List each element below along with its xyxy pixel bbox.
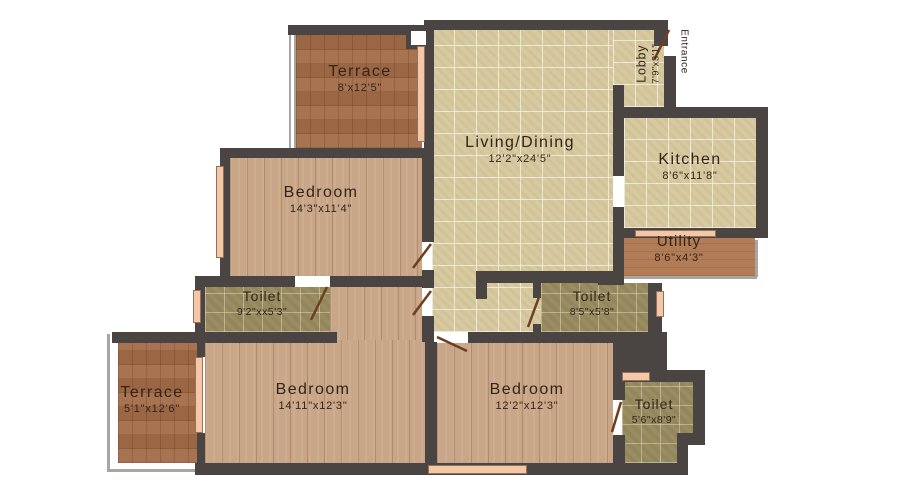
door-swing-overlay — [0, 0, 900, 500]
toilet-middle-label: Toilet 8'5"x5'8" — [522, 288, 662, 319]
terrace-top-label: Terrace 8'x12'5" — [290, 62, 430, 96]
bedroom-bottom-right-door-leaf — [437, 337, 467, 351]
bedroom-top-door-leaf — [413, 244, 431, 268]
bedroom-bottom-left-label: Bedroom 14'11"x12'3" — [233, 380, 393, 414]
hallway-door-leaf — [413, 291, 431, 315]
floor-plan: Terrace 8'x12'5" Living/Dining 12'2"x24'… — [0, 0, 900, 500]
living-dining-label: Living/Dining 12'2"x24'5" — [440, 133, 600, 167]
entrance-label: Entrance — [679, 20, 690, 84]
toilet-bottom-right-label: Toilet 5'6"x8'9" — [584, 396, 724, 427]
bedroom-bottom-right-label: Bedroom 12'2"x12'3" — [447, 380, 607, 414]
utility-label: Utility 8'6"x4'3" — [609, 233, 749, 266]
bedroom-top-label: Bedroom 14'3"x11'4" — [241, 183, 401, 217]
kitchen-label: Kitchen 8'6"x11'8" — [620, 150, 760, 184]
terrace-bottom-label: Terrace 5'1"x12'6" — [82, 383, 222, 417]
toilet-left-label: Toilet 9'2"xx5'3" — [192, 288, 332, 319]
lobby-label: Lobby 7'9"x3'1" — [634, 24, 662, 104]
